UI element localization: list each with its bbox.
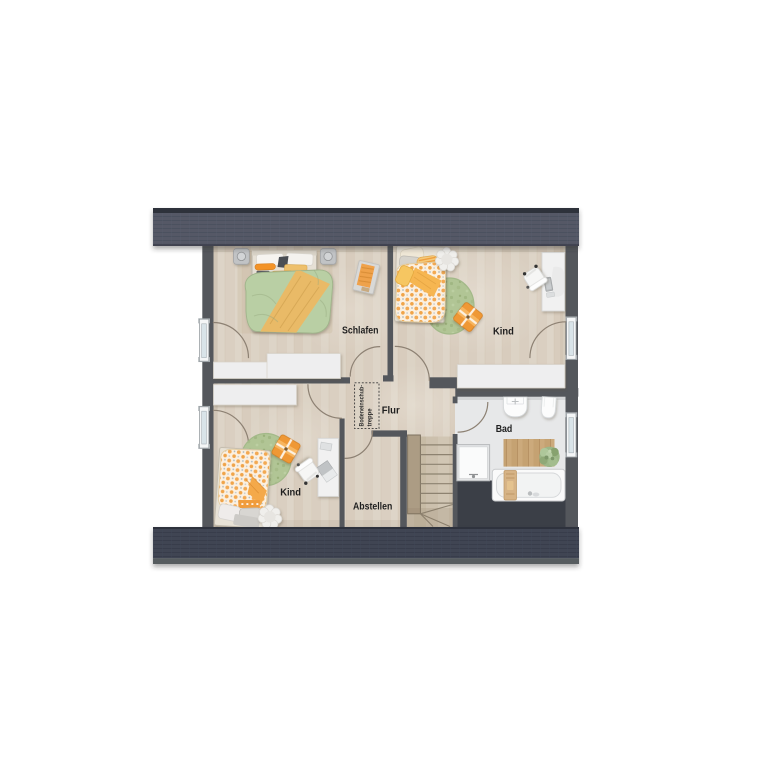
svg-text:Bad: Bad [496,424,513,435]
svg-text:Schlafen: Schlafen [342,326,379,337]
svg-text:Kind: Kind [493,327,514,338]
svg-text:Kind: Kind [280,487,301,498]
svg-text:Abstellen: Abstellen [353,501,392,512]
svg-text:Flur: Flur [382,405,400,416]
svg-text:treppe: treppe [367,408,374,426]
svg-text:Bodeneinschub-: Bodeneinschub- [359,385,366,427]
